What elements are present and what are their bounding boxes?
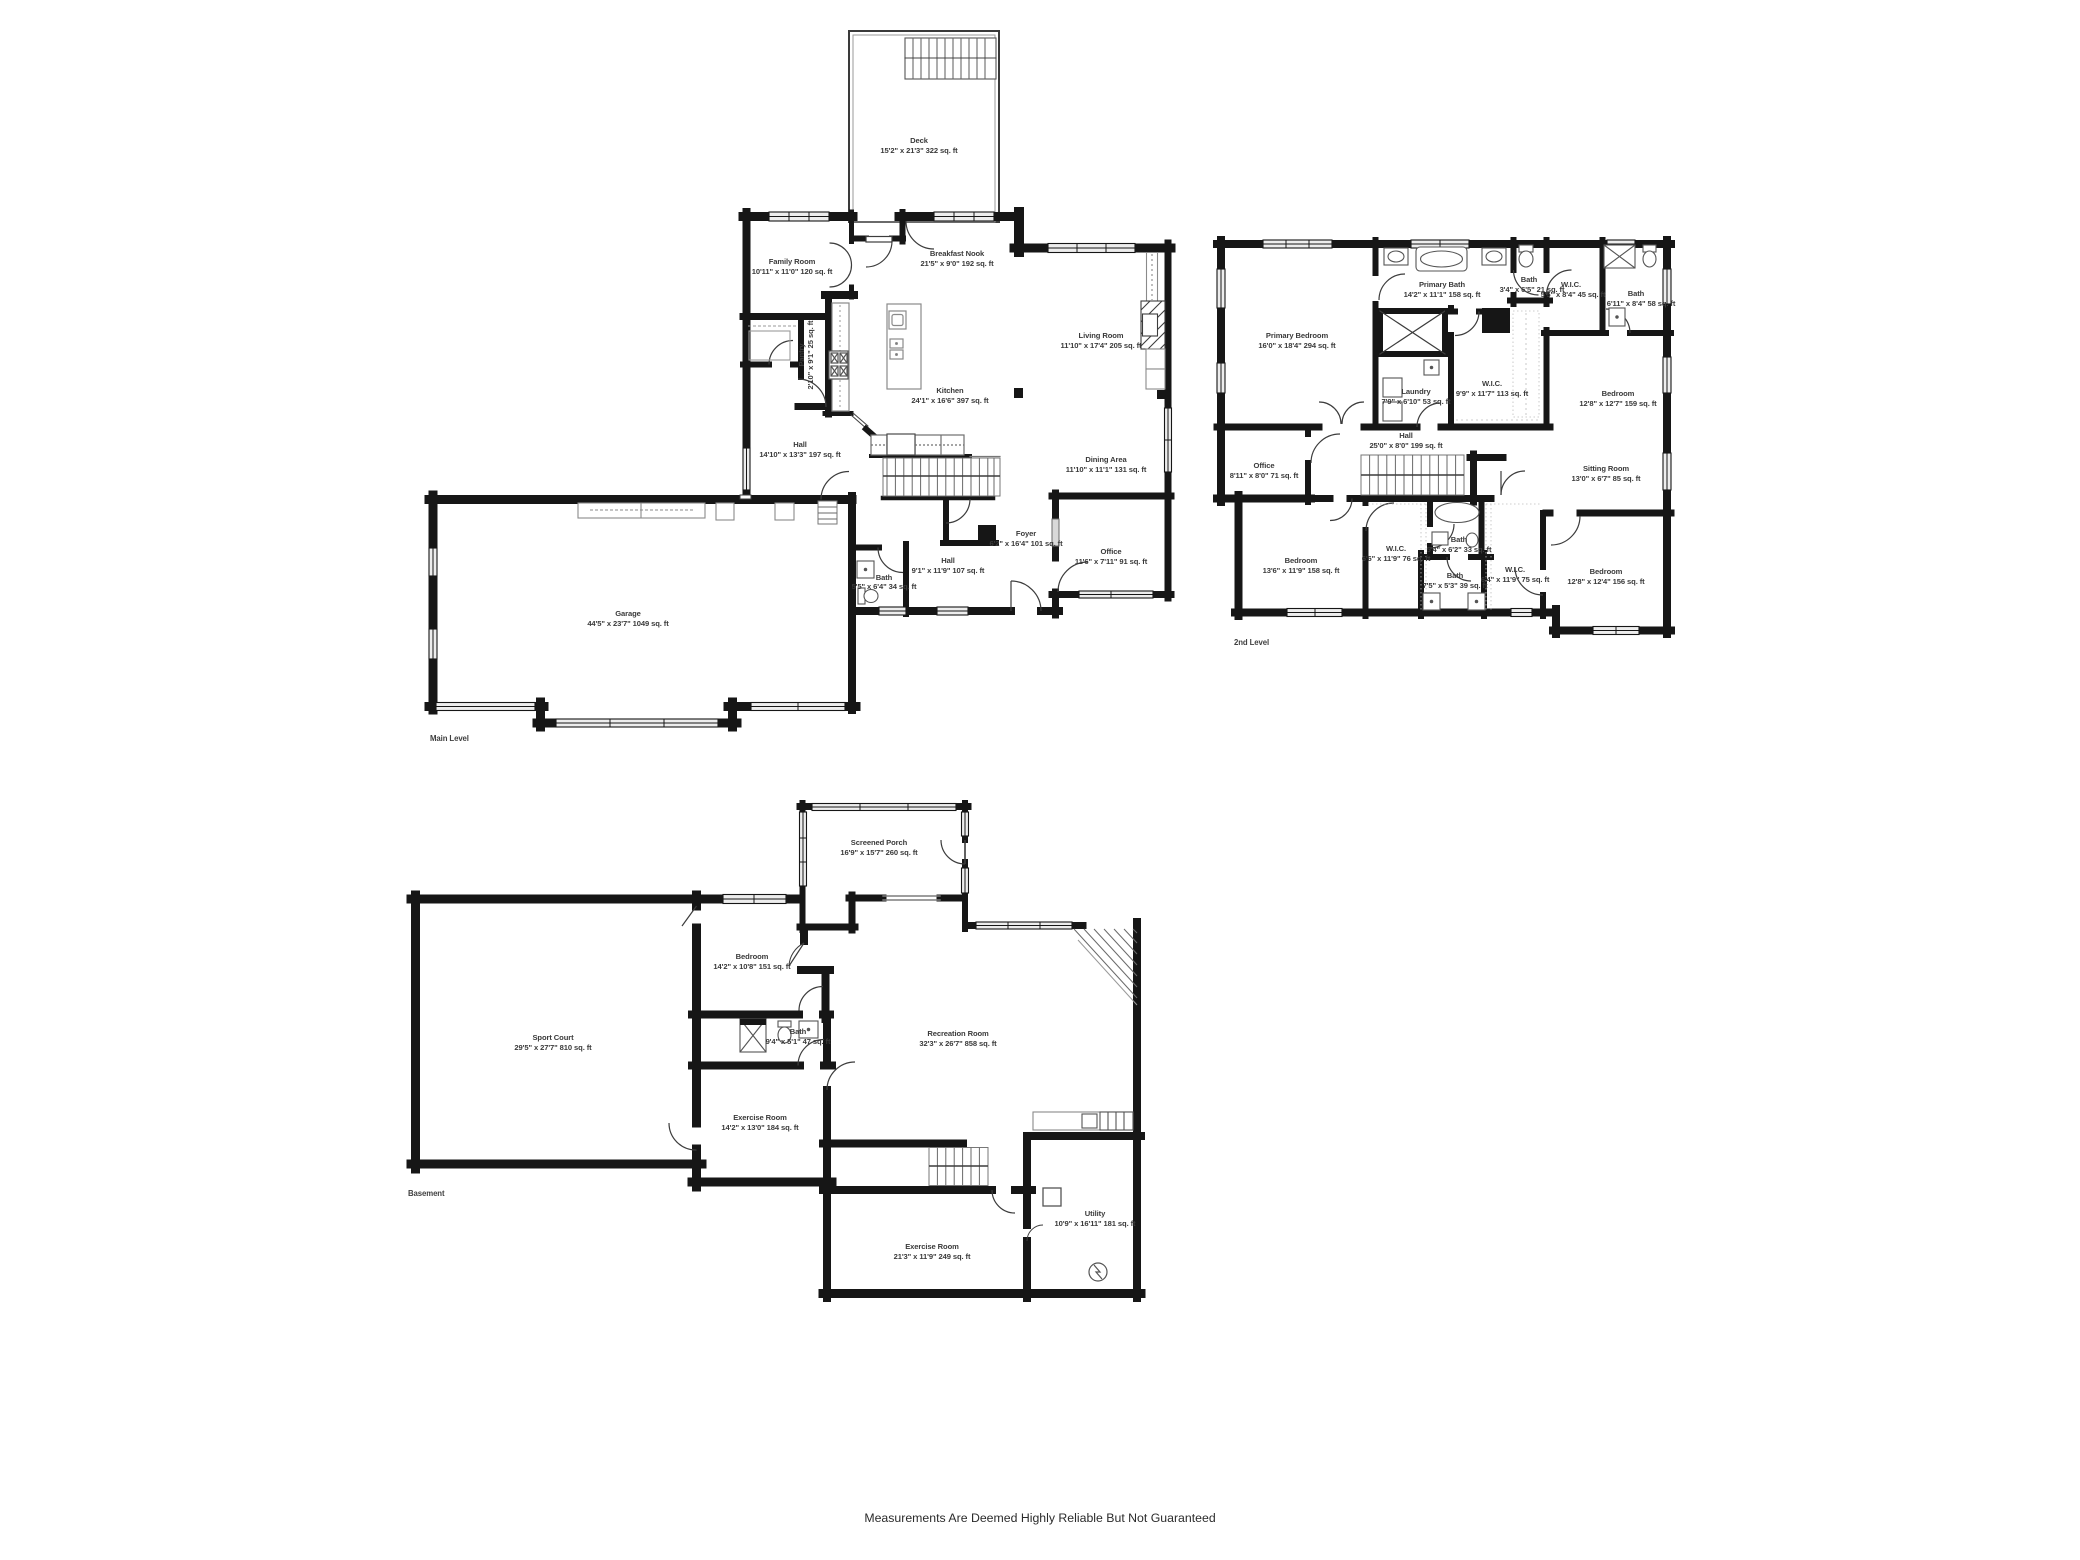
svg-text:Sitting Room: Sitting Room [1583, 464, 1629, 473]
svg-text:Basement: Basement [408, 1189, 445, 1198]
svg-text:Bath: Bath [790, 1027, 807, 1036]
svg-text:Foyer: Foyer [1016, 529, 1036, 538]
svg-text:13'0" x 6'7" 85 sq. ft: 13'0" x 6'7" 85 sq. ft [1572, 474, 1642, 483]
svg-text:W.I.C.: W.I.C. [1505, 565, 1525, 574]
svg-text:12'8" x 12'4" 156 sq. ft: 12'8" x 12'4" 156 sq. ft [1567, 577, 1645, 586]
svg-text:16'0" x 18'4" 294 sq. ft: 16'0" x 18'4" 294 sq. ft [1258, 341, 1336, 350]
svg-text:W.I.C.: W.I.C. [1386, 544, 1406, 553]
svg-text:14'10" x 13'3" 197 sq. ft: 14'10" x 13'3" 197 sq. ft [759, 450, 841, 459]
svg-text:10'11" x 11'0" 120 sq. ft: 10'11" x 11'0" 120 sq. ft [752, 267, 833, 276]
svg-text:Hall: Hall [793, 440, 807, 449]
svg-text:Primary Bath: Primary Bath [1419, 280, 1466, 289]
svg-text:Bedroom: Bedroom [736, 952, 769, 961]
svg-text:21'3" x 11'9" 249 sq. ft: 21'3" x 11'9" 249 sq. ft [894, 1252, 971, 1261]
svg-text:Sport Court: Sport Court [532, 1033, 574, 1042]
svg-text:7'9" x 6'10" 53 sq. ft: 7'9" x 6'10" 53 sq. ft [1382, 397, 1452, 406]
svg-text:15'2" x 21'3" 322 sq. ft: 15'2" x 21'3" 322 sq. ft [880, 146, 958, 155]
svg-text:Pantry: Pantry [797, 343, 806, 367]
svg-text:14'2" x 13'0" 184 sq. ft: 14'2" x 13'0" 184 sq. ft [721, 1123, 799, 1132]
svg-text:10'9" x 16'11" 181 sq. ft: 10'9" x 16'11" 181 sq. ft [1055, 1219, 1136, 1228]
svg-text:6'6" x 11'9" 76 sq. ft: 6'6" x 11'9" 76 sq. ft [1362, 554, 1431, 563]
svg-text:11'6" x 7'11" 91 sq. ft: 11'6" x 7'11" 91 sq. ft [1075, 557, 1148, 566]
svg-text:Family Room: Family Room [769, 257, 816, 266]
svg-text:Bath: Bath [1447, 571, 1464, 580]
svg-text:Bath: Bath [876, 573, 893, 582]
svg-text:6'11" x 8'4" 58 sq. ft: 6'11" x 8'4" 58 sq. ft [1607, 299, 1676, 308]
svg-text:6'4" x 11'9" 75 sq. ft: 6'4" x 11'9" 75 sq. ft [1481, 575, 1550, 584]
svg-text:Bath: Bath [1521, 275, 1538, 284]
svg-text:Exercise Room: Exercise Room [905, 1242, 959, 1251]
svg-text:Measurements Are Deemed Highly: Measurements Are Deemed Highly Reliable … [864, 1511, 1215, 1525]
svg-text:5'5" x 6'4" 34 sq. ft: 5'5" x 6'4" 34 sq. ft [852, 582, 917, 591]
svg-text:Screened Porch: Screened Porch [851, 838, 908, 847]
svg-text:Bath: Bath [1628, 289, 1645, 298]
svg-text:16'9" x 15'7" 260 sq. ft: 16'9" x 15'7" 260 sq. ft [840, 848, 918, 857]
svg-text:Office: Office [1254, 461, 1275, 470]
svg-text:Kitchen: Kitchen [936, 386, 964, 395]
svg-text:24'1" x 16'6" 397 sq. ft: 24'1" x 16'6" 397 sq. ft [911, 396, 989, 405]
svg-text:5'4" x 6'2" 33 sq. ft: 5'4" x 6'2" 33 sq. ft [1427, 545, 1492, 554]
svg-text:Bedroom: Bedroom [1602, 389, 1635, 398]
svg-text:9'9" x 11'7" 113 sq. ft: 9'9" x 11'7" 113 sq. ft [1456, 389, 1529, 398]
svg-text:14'2" x 11'1" 158 sq. ft: 14'2" x 11'1" 158 sq. ft [1404, 290, 1481, 299]
svg-text:32'3" x 26'7" 858 sq. ft: 32'3" x 26'7" 858 sq. ft [919, 1039, 997, 1048]
svg-text:Breakfast Nook: Breakfast Nook [930, 249, 985, 258]
svg-text:Exercise Room: Exercise Room [733, 1113, 787, 1122]
svg-text:Office: Office [1101, 547, 1122, 556]
svg-text:Laundry: Laundry [1401, 387, 1431, 396]
svg-text:Bedroom: Bedroom [1285, 556, 1318, 565]
svg-text:25'0" x 8'0" 199 sq. ft: 25'0" x 8'0" 199 sq. ft [1369, 441, 1443, 450]
svg-text:W.I.C.: W.I.C. [1482, 379, 1502, 388]
svg-text:13'6" x 11'9" 158 sq. ft: 13'6" x 11'9" 158 sq. ft [1263, 566, 1340, 575]
svg-text:11'10" x 17'4" 205 sq. ft: 11'10" x 17'4" 205 sq. ft [1061, 341, 1142, 350]
svg-text:Recreation Room: Recreation Room [927, 1029, 989, 1038]
svg-text:29'5" x 27'7" 810 sq. ft: 29'5" x 27'7" 810 sq. ft [514, 1043, 592, 1052]
svg-text:2nd Level: 2nd Level [1234, 638, 1269, 647]
svg-text:7'5" x 5'3" 39 sq. ft: 7'5" x 5'3" 39 sq. ft [1423, 581, 1488, 590]
svg-text:Dining Area: Dining Area [1085, 455, 1127, 464]
svg-text:W.I.C.: W.I.C. [1561, 280, 1581, 289]
svg-text:Main Level: Main Level [430, 734, 469, 743]
svg-text:5'5" x 8'4" 45 sq. ft: 5'5" x 8'4" 45 sq. ft [1541, 290, 1606, 299]
svg-text:9'4" x 5'1" 47 sq. ft: 9'4" x 5'1" 47 sq. ft [766, 1037, 831, 1046]
svg-text:Deck: Deck [910, 136, 929, 145]
svg-text:2'10" x 9'1" 25 sq. ft: 2'10" x 9'1" 25 sq. ft [806, 320, 815, 390]
svg-text:8'11" x 8'0" 71 sq. ft: 8'11" x 8'0" 71 sq. ft [1230, 471, 1299, 480]
svg-text:14'2" x 10'8" 151 sq. ft: 14'2" x 10'8" 151 sq. ft [713, 962, 791, 971]
svg-text:Living Room: Living Room [1079, 331, 1124, 340]
svg-text:21'5" x 9'0" 192 sq. ft: 21'5" x 9'0" 192 sq. ft [920, 259, 994, 268]
svg-text:Hall: Hall [1399, 431, 1413, 440]
svg-text:Utility: Utility [1085, 1209, 1106, 1218]
svg-text:12'8" x 12'7" 159 sq. ft: 12'8" x 12'7" 159 sq. ft [1579, 399, 1657, 408]
svg-text:Hall: Hall [941, 556, 955, 565]
svg-text:44'5" x 23'7" 1049 sq. ft: 44'5" x 23'7" 1049 sq. ft [587, 619, 669, 628]
svg-text:Primary Bedroom: Primary Bedroom [1266, 331, 1329, 340]
svg-text:Bath: Bath [1451, 535, 1468, 544]
svg-text:6'2" x 16'4" 101 sq. ft: 6'2" x 16'4" 101 sq. ft [989, 539, 1063, 548]
svg-text:Bedroom: Bedroom [1590, 567, 1623, 576]
svg-text:11'10" x 11'1" 131 sq. ft: 11'10" x 11'1" 131 sq. ft [1066, 465, 1147, 474]
svg-text:9'1" x 11'9" 107 sq. ft: 9'1" x 11'9" 107 sq. ft [912, 566, 985, 575]
svg-text:Garage: Garage [615, 609, 641, 618]
